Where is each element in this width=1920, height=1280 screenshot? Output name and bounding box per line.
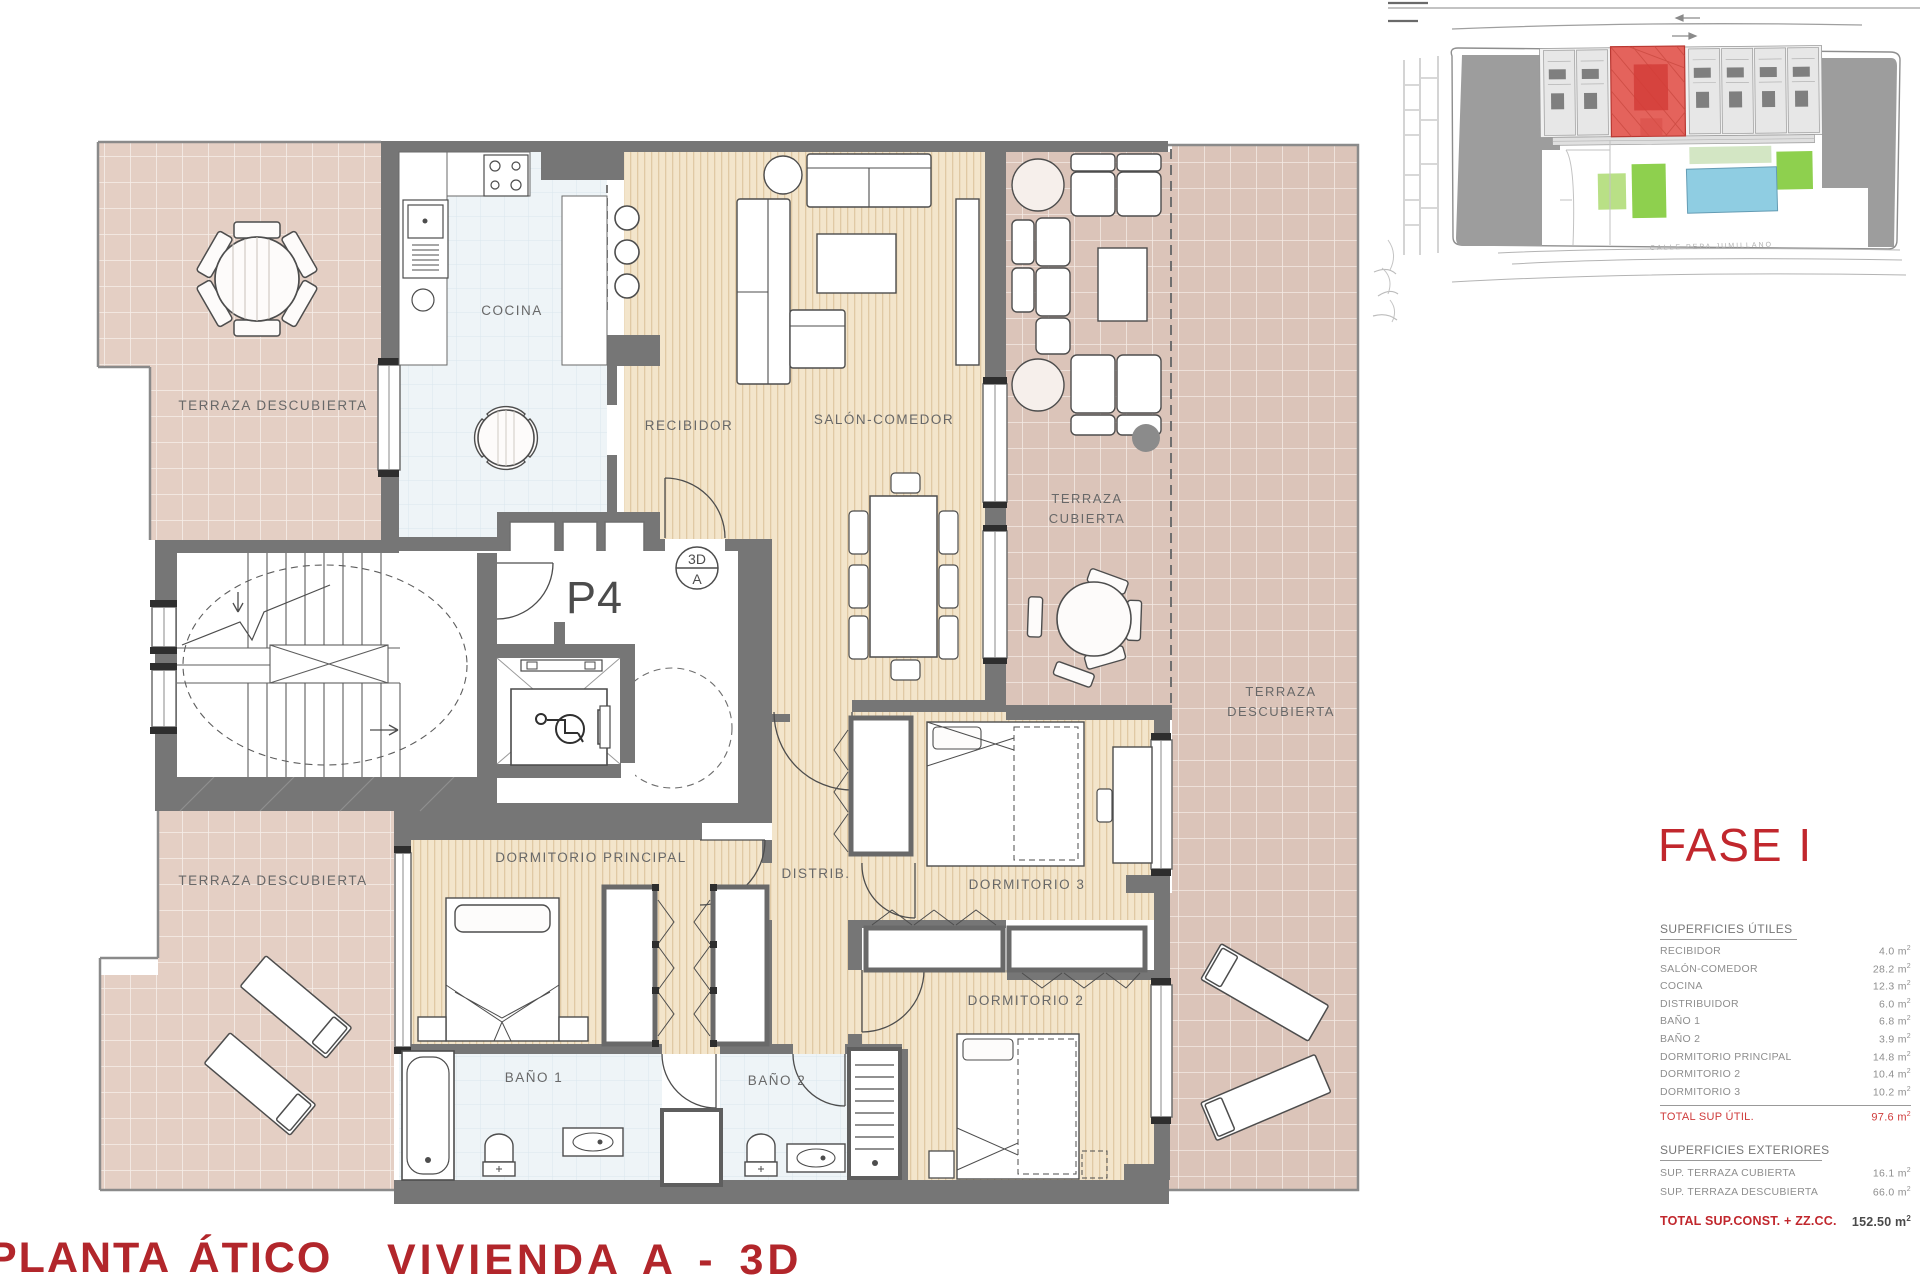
svg-text:A: A <box>692 571 702 587</box>
svg-text:3D: 3D <box>688 551 706 567</box>
